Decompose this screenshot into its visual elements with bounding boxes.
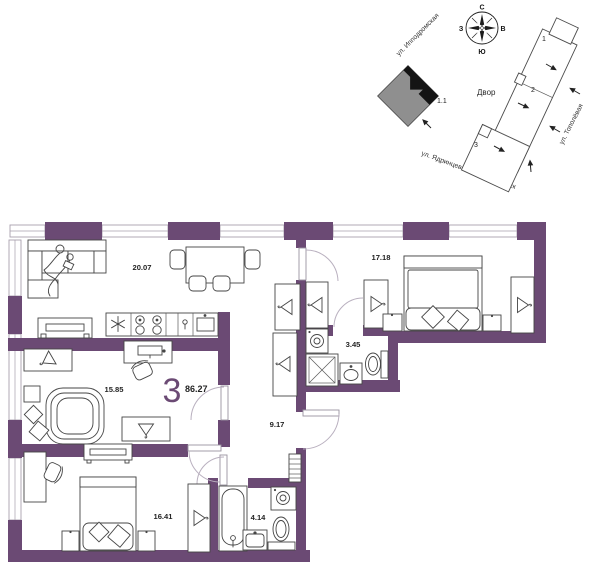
door-leaf xyxy=(220,455,227,485)
room-area-label: 3.45 xyxy=(346,340,362,349)
street-ippodromskaya-label: ул. Ипподромская xyxy=(395,12,441,58)
section-1-label: 1 xyxy=(542,36,546,43)
washing-machine-icon xyxy=(271,487,296,510)
wall xyxy=(517,222,546,240)
room-area-label: 4.14 xyxy=(251,513,267,522)
ottoman-icon xyxy=(24,386,40,402)
wardrobe-icon xyxy=(24,349,72,371)
bathroom-1-furniture: 3.45 xyxy=(306,329,388,386)
toilet-icon xyxy=(366,351,389,378)
bathroom-2-furniture: 4.14 xyxy=(219,486,296,551)
entrance-arrow xyxy=(548,123,562,134)
kitchen-counter xyxy=(106,313,218,336)
bedroom-2-furniture: 16.41 xyxy=(24,444,210,552)
bed-icon xyxy=(404,256,482,331)
chair-icon xyxy=(189,276,206,291)
wardrobe-icon xyxy=(188,484,210,552)
chair-icon xyxy=(213,276,230,291)
nightstand-icon xyxy=(62,531,79,551)
nightstand-icon xyxy=(383,314,402,331)
wall xyxy=(218,420,230,447)
door-arc xyxy=(334,298,363,327)
sink-icon xyxy=(243,530,267,550)
desk-icon xyxy=(24,452,65,502)
current-building-marker xyxy=(378,66,439,127)
entrance-arrow xyxy=(420,117,433,130)
wardrobe-icon xyxy=(275,284,300,330)
nightstand-icon xyxy=(138,531,155,551)
entrance-arrow xyxy=(527,159,534,172)
entrance-door-arc xyxy=(303,414,339,449)
entrance-arrow xyxy=(568,85,582,96)
chair-icon xyxy=(170,250,185,269)
wall xyxy=(296,240,306,248)
compass-west-label: З xyxy=(459,26,464,33)
windows-left xyxy=(9,240,21,520)
apartment-plan: 20.07 9.17 xyxy=(8,222,546,562)
room-area-label: 17.18 xyxy=(371,253,390,262)
wall xyxy=(284,222,333,240)
courtyard-label: Двор xyxy=(477,88,496,97)
entrance-door-leaf xyxy=(303,410,339,416)
floor-plan-page: С Ю З В ул. Ипподромская ул. Тополёвая у… xyxy=(0,0,600,568)
compass-icon: С Ю З В xyxy=(459,5,506,57)
tv-console-icon xyxy=(84,444,132,463)
toilet-icon xyxy=(268,517,295,550)
door-arc xyxy=(189,451,220,482)
bedroom-1-furniture: 17.18 xyxy=(306,253,534,333)
room-area-label: 16.41 xyxy=(153,512,173,521)
wall xyxy=(168,222,220,240)
room-furniture: 15.85 xyxy=(24,341,172,444)
room-area-label: 20.07 xyxy=(132,263,151,272)
site-plan: С Ю З В ул. Ипподромская ул. Тополёвая у… xyxy=(378,5,585,192)
wall xyxy=(8,550,310,562)
section-3-label: 3 xyxy=(474,142,478,149)
wall xyxy=(8,296,22,334)
wardrobe-icon xyxy=(306,282,328,328)
pillow-icon xyxy=(24,405,42,423)
wall xyxy=(534,240,546,343)
rooms-count-label: 3 xyxy=(163,372,182,410)
nightstand-icon xyxy=(483,315,501,331)
sink-icon xyxy=(340,363,362,384)
door-leaf xyxy=(299,248,306,280)
room-area-label: 9.17 xyxy=(270,420,285,429)
wall xyxy=(8,520,22,552)
room-area-label: 15.85 xyxy=(104,385,124,394)
washing-machine-icon xyxy=(306,329,328,353)
street-topolyovaya-label: ул. Тополёвая xyxy=(558,103,585,146)
living-kitchen-furniture: 20.07 xyxy=(28,240,300,338)
chair-icon xyxy=(245,250,260,269)
wall xyxy=(403,222,449,240)
floor-plan-svg: С Ю З В ул. Ипподромская ул. Тополёвая у… xyxy=(0,0,600,568)
dining-table-icon xyxy=(170,247,260,291)
armchair-icon xyxy=(46,388,104,444)
door-leaf xyxy=(188,445,221,451)
wardrobe-icon xyxy=(511,277,534,333)
compass-south-label: Ю xyxy=(478,49,485,56)
compass-east-label: В xyxy=(500,26,505,33)
wall xyxy=(45,222,102,240)
building-outline xyxy=(461,9,583,192)
section-2-label: 2 xyxy=(531,87,535,94)
wall xyxy=(218,312,230,385)
sofa-icon xyxy=(28,240,106,298)
building-mark-label: 1.1 xyxy=(437,98,447,105)
wardrobe-icon xyxy=(122,417,170,441)
door-arc xyxy=(306,250,338,281)
door-leaf xyxy=(221,386,228,420)
bed-icon xyxy=(80,477,136,551)
radiator-icon xyxy=(289,454,301,482)
tv-console-icon xyxy=(38,318,92,338)
compass-north-label: С xyxy=(479,5,484,12)
total-area-label: 86.27 xyxy=(185,384,208,394)
shower-icon xyxy=(306,354,338,386)
wardrobe-icon xyxy=(273,333,297,396)
